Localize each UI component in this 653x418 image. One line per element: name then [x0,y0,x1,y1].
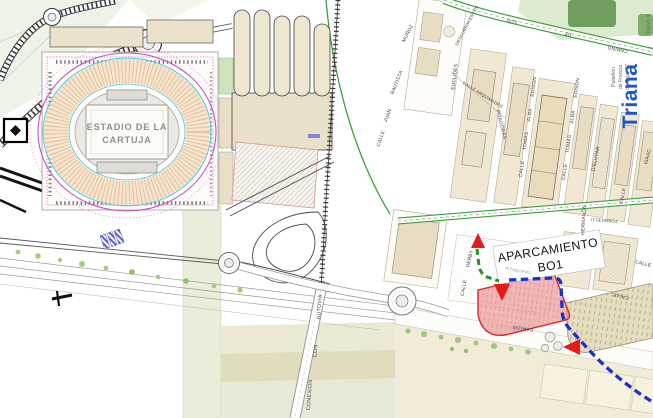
service-parking-lot [232,142,318,208]
map-canvas: ESTADIO DE LA CARTUJA [0,0,653,418]
roundabout-northwest-small [44,9,61,26]
blue-marker [308,134,320,138]
road-label-con: CON [313,344,320,357]
precinct-east-strip [219,58,233,204]
tree-grove [568,0,616,27]
map-symbol-square [4,119,27,142]
roundabout-mid [219,253,240,274]
roundabout-east [388,287,416,315]
pavilion-label-corner: Pabel. d [646,14,652,33]
pavilion-label-line3: de Expo 92 [625,64,631,90]
pavilion-label-line2: de Francia [618,65,624,89]
pavilion-label-line1: Pabellón [611,67,617,87]
stadium-label-line2: CARTUJA [102,135,152,145]
stadium-label-line1: ESTADIO DE LA [87,122,168,132]
site-plan-svg: ESTADIO DE LA CARTUJA [0,0,653,418]
